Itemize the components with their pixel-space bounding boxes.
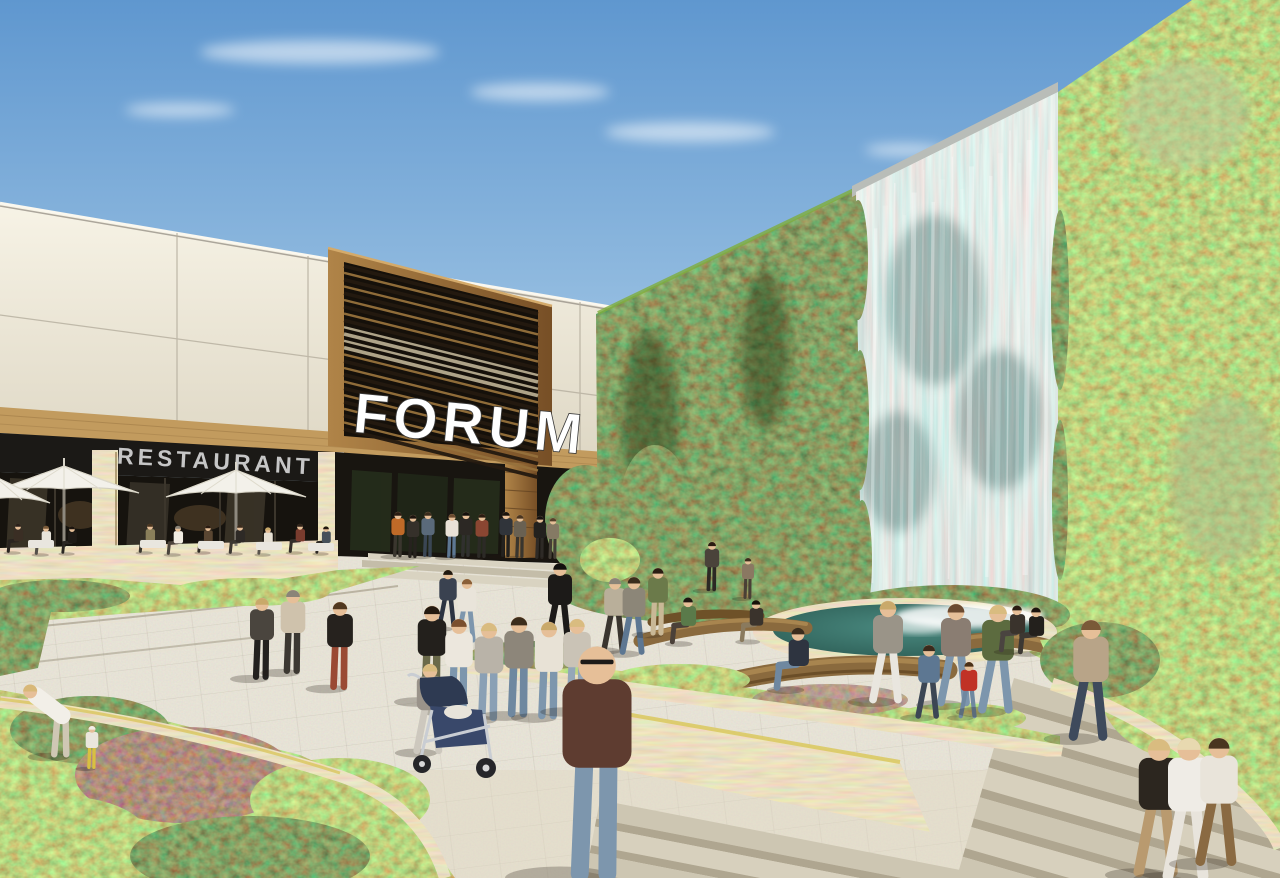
stone-pillar-left [92, 450, 118, 556]
scene-forum-plaza-rendering: RESTAURANT FORUM [0, 0, 1280, 878]
